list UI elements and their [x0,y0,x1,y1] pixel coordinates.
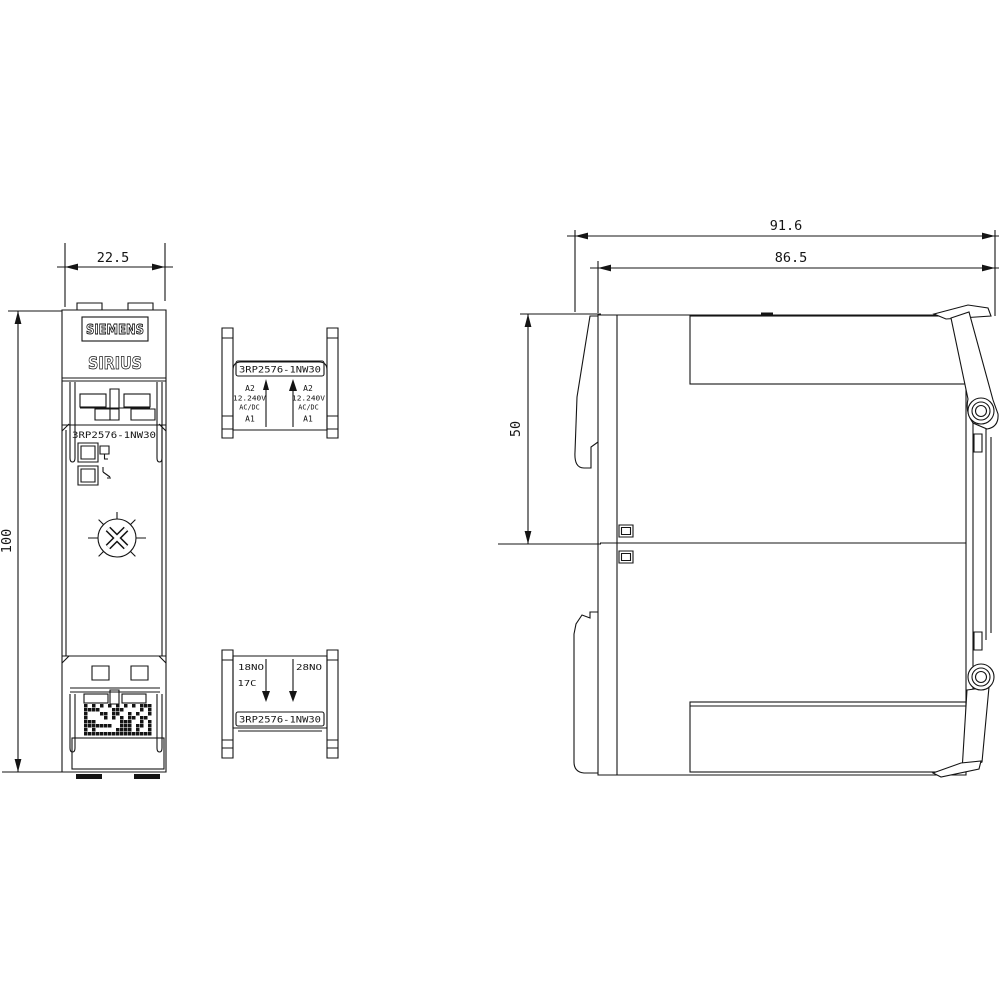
lower-hatch-left [84,694,108,703]
dimension-height: 100 [0,311,62,772]
relay-contact-symbol [103,467,111,478]
din-rail-clip-top [575,316,598,468]
dim-depth-total-lines [567,230,999,316]
side-bottom-recess [690,702,966,772]
terminal-a2-left: A2 [245,384,255,393]
dimension-width: 22.5 [57,243,173,307]
terminal-bottom-code: 3RP2576-1NW30 [239,716,321,726]
latch-bottom-lever [962,687,989,771]
terminal-voltage-left: 12.240V [233,395,266,403]
led-indicator-bottom [78,466,98,485]
clamp-hatch-left [80,394,106,407]
dim-upper-height-arrow-bottom [525,531,532,544]
contact-18no-label: 18NO [238,663,264,672]
clamp-hatch-right [124,394,150,407]
rotary-dial [88,512,146,557]
latch-bottom [933,664,994,777]
foot-left [76,774,102,779]
datamatrix-code [84,704,152,736]
supply-voltage-symbol [100,446,109,459]
dimension-depth-body: 86.5 [590,250,999,313]
remove-arrow-right-head [289,691,297,702]
dim-depth-body-lines [590,261,999,313]
dim-height-arrow-top [15,311,22,324]
dim-upper-height-value: 50 [508,421,524,437]
removable-terminal-top: 3RP2576-1NW30 A2 12.240V AC/DC A1 A2 12.… [222,328,338,438]
dimensional-drawing-page: SIEMENS SIRIUS 3RP2576-1NW30 [0,0,1000,1000]
side-right-rail [974,429,991,650]
insert-arrow-thick-head [289,379,297,391]
terminal-a2-right: A2 [303,384,313,393]
dim-upper-height-arrow-top [525,314,532,327]
side-top-recess [690,316,966,384]
contact-17c-label: 17C [238,679,257,688]
dim-depth-total-arrow-right [982,233,995,240]
lower-hatch-right [122,694,146,703]
contact-28no-label: 28NO [296,663,322,672]
dim-depth-body-arrow-right [982,265,995,272]
led-indicator-top [78,443,98,462]
terminal-supply-left: AC/DC [239,404,259,412]
removable-terminal-bottom: 3RP2576-1NW30 18NO 17C 28NO [222,650,338,758]
dimension-depth-total: 91.6 [567,218,999,316]
dim-height-value: 100 [0,529,15,553]
top-edge-tab [761,313,773,316]
dim-width-arrow-right [152,264,165,271]
dim-width-value: 22.5 [97,250,130,266]
side-vent-squares [619,525,633,563]
insert-arrow-thin-head [263,379,269,390]
foot-right [134,774,160,779]
front-view: SIEMENS SIRIUS 3RP2576-1NW30 [62,303,166,779]
front-product-code: 3RP2576-1NW30 [72,431,156,441]
status-leds [78,443,111,485]
dial-cross-slot-inner [108,529,126,547]
din-rail-clip-bottom [574,612,598,773]
terminal-top-code: 3RP2576-1NW30 [239,366,321,376]
terminal-voltage-right: 12.240V [292,395,325,403]
dim-depth-total-arrow-left [575,233,588,240]
sirius-label: SIRIUS [88,354,142,374]
terminal-supply-right: AC/DC [298,404,318,412]
dim-depth-body-arrow-left [598,265,611,272]
remove-arrow-left-head [262,691,270,702]
terminal-top-rails [222,328,338,438]
rating-label-area [72,738,164,769]
terminal-a1-right: A1 [303,415,313,424]
siemens-logo: SIEMENS [86,322,144,338]
dimension-upper-height: 50 [498,314,601,544]
technical-drawing: SIEMENS SIRIUS 3RP2576-1NW30 [0,0,1000,1000]
dim-height-arrow-bottom [15,759,22,772]
dim-depth-body-value: 86.5 [775,250,808,266]
side-view [574,305,998,777]
dim-depth-total-value: 91.6 [770,218,803,234]
terminal-a1-left: A1 [245,415,255,424]
dim-width-arrow-left [65,264,78,271]
